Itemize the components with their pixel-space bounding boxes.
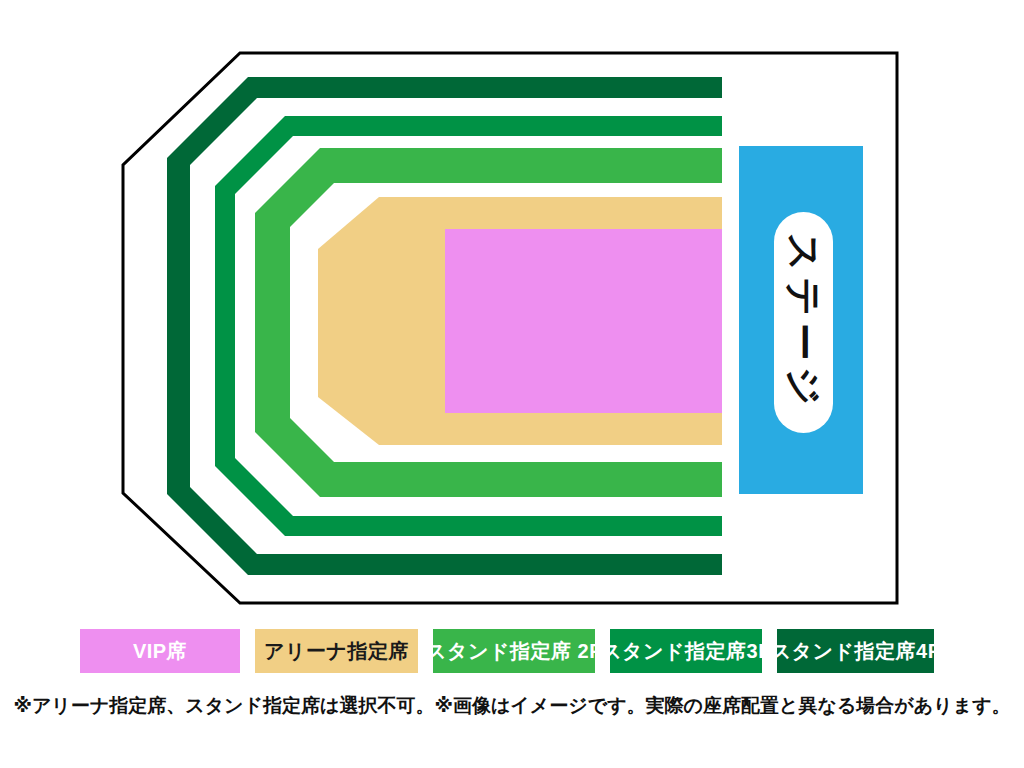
- legend-item-stand-2f: スタンド指定席 2F: [433, 629, 595, 673]
- legend-item-arena: アリーナ指定席: [255, 629, 418, 673]
- legend-item-vip: VIP席: [80, 629, 240, 673]
- seating-chart-page: ステージ VIP席 アリーナ指定席 スタンド指定席 2F スタンド指定席3F ス…: [0, 0, 1024, 768]
- legend-item-stand-4f: スタンド指定席4F: [777, 629, 934, 673]
- legend-label-stand-3f: スタンド指定席3F: [601, 638, 771, 665]
- seating-map: ステージ: [0, 0, 1024, 620]
- legend-label-arena: アリーナ指定席: [264, 638, 409, 665]
- disclaimer-note: ※アリーナ指定席、スタンド指定席は選択不可。※画像はイメージです。実際の座席配置…: [0, 693, 1024, 719]
- legend-item-stand-3f: スタンド指定席3F: [610, 629, 762, 673]
- area-vip: [445, 229, 722, 413]
- legend-label-vip: VIP席: [133, 638, 187, 665]
- legend: VIP席 アリーナ指定席 スタンド指定席 2F スタンド指定席3F スタンド指定…: [80, 629, 934, 673]
- legend-label-stand-2f: スタンド指定席 2F: [426, 638, 602, 665]
- legend-label-stand-4f: スタンド指定席4F: [771, 638, 941, 665]
- stage-label: ステージ: [783, 233, 825, 412]
